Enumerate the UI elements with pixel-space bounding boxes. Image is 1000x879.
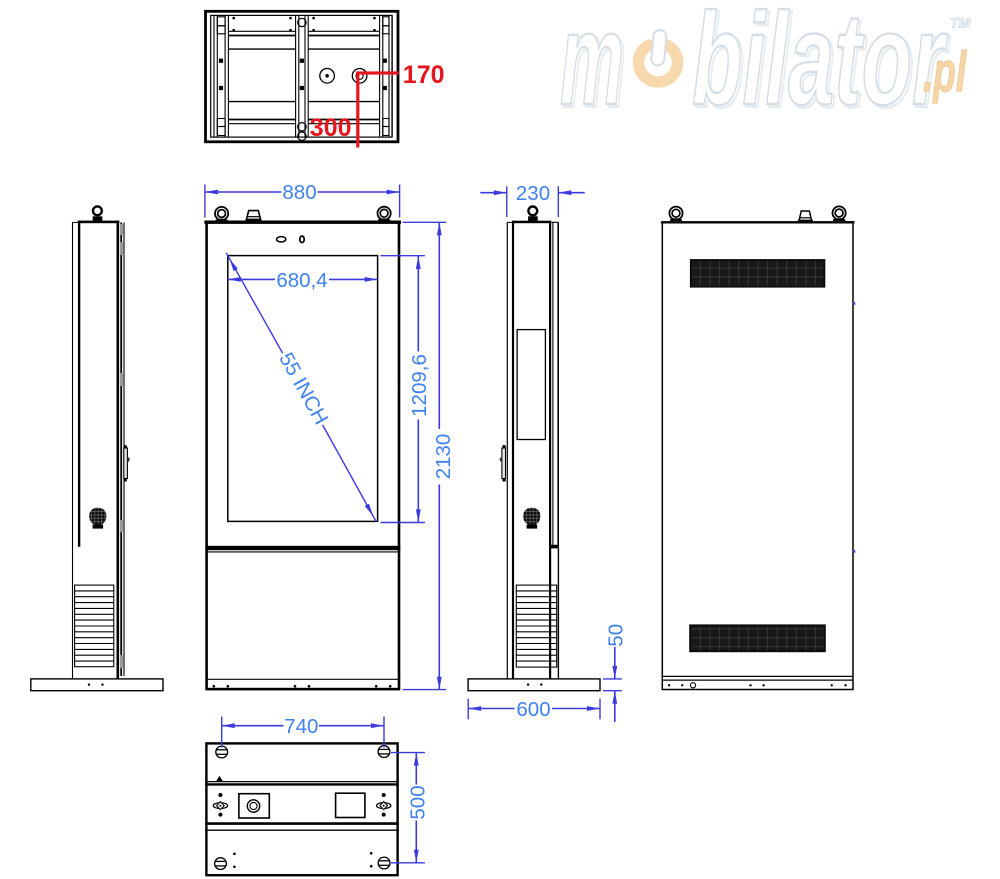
svg-text:1209,6: 1209,6 <box>408 354 431 417</box>
svg-text:500: 500 <box>406 785 429 819</box>
svg-text:680,4: 680,4 <box>276 269 327 292</box>
svg-text:m: m <box>560 0 624 133</box>
svg-text:.pl: .pl <box>923 40 967 104</box>
svg-text:880: 880 <box>282 181 316 204</box>
svg-text:2130: 2130 <box>432 434 455 480</box>
svg-text:bilator: bilator <box>692 0 948 133</box>
svg-text:740: 740 <box>284 715 318 738</box>
svg-text:TM: TM <box>950 15 971 31</box>
svg-text:600: 600 <box>516 698 550 721</box>
svg-text:50: 50 <box>605 624 628 647</box>
svg-text:230: 230 <box>516 182 550 205</box>
svg-text:170: 170 <box>403 61 445 89</box>
svg-text:300: 300 <box>310 114 352 142</box>
